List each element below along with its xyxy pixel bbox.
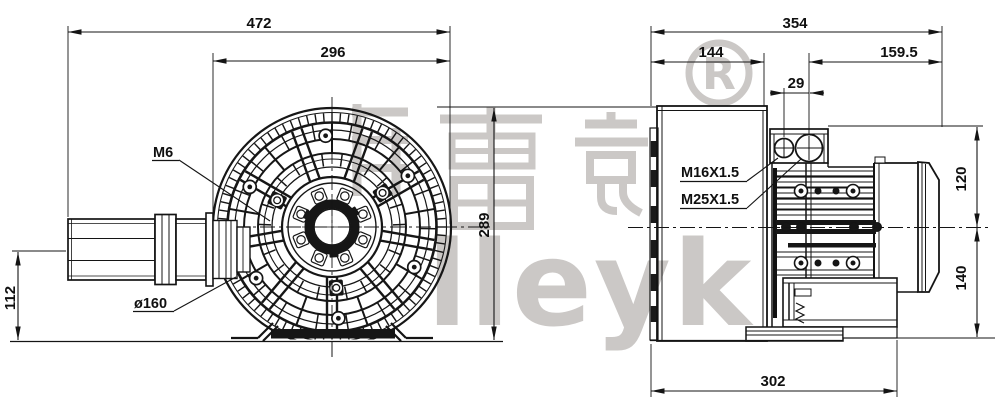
dim-overall-width: 472 bbox=[246, 15, 271, 32]
dim-overall-length: 354 bbox=[782, 15, 808, 32]
dim-height-above-axis: 120 bbox=[953, 166, 970, 191]
watermark-cn bbox=[440, 107, 648, 226]
label-diameter-160: ø160 bbox=[134, 296, 167, 312]
blower-technical-drawing-page: R lleyk bbox=[0, 0, 1000, 418]
dim-base-length: 302 bbox=[760, 373, 785, 390]
dim-height-below-axis: 140 bbox=[953, 265, 970, 290]
side-view-base bbox=[746, 278, 897, 341]
label-gland-m25: M25X1.5 bbox=[681, 192, 739, 208]
dim-gland-spacing: 29 bbox=[788, 75, 805, 92]
label-thread-m6: M6 bbox=[153, 145, 173, 161]
dim-housing-length: 144 bbox=[698, 44, 724, 61]
motor-fins bbox=[776, 171, 882, 275]
junction-box bbox=[770, 129, 874, 167]
dim-overall-height: 289 bbox=[476, 212, 493, 237]
dim-housing-width: 296 bbox=[320, 44, 345, 61]
motor-end bbox=[874, 157, 939, 293]
technical-drawing: R lleyk bbox=[0, 0, 1000, 418]
dim-motor-length: 159.5 bbox=[880, 44, 918, 61]
label-gland-m16: M16X1.5 bbox=[681, 165, 739, 181]
fan-cover-cap bbox=[918, 162, 939, 292]
muffler bbox=[68, 213, 250, 286]
dim-muffler-axis-height: 112 bbox=[2, 286, 19, 310]
